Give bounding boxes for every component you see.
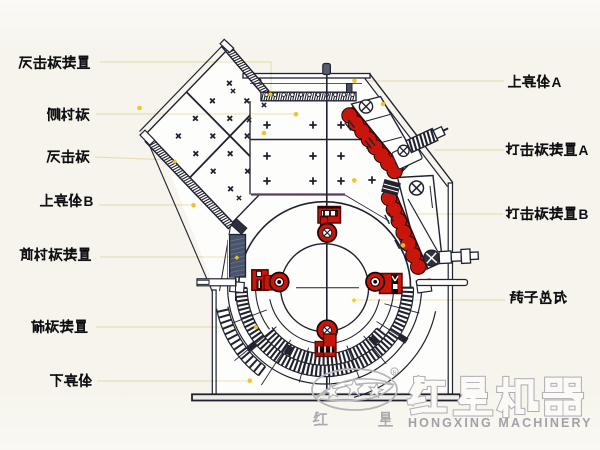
svg-text:B: B <box>579 207 589 222</box>
svg-text:HONGXING MACHINERY: HONGXING MACHINERY <box>408 416 593 430</box>
svg-text:A: A <box>552 75 562 90</box>
svg-text:A: A <box>579 143 589 158</box>
svg-text:B: B <box>84 194 94 209</box>
svg-text:R: R <box>393 370 397 376</box>
